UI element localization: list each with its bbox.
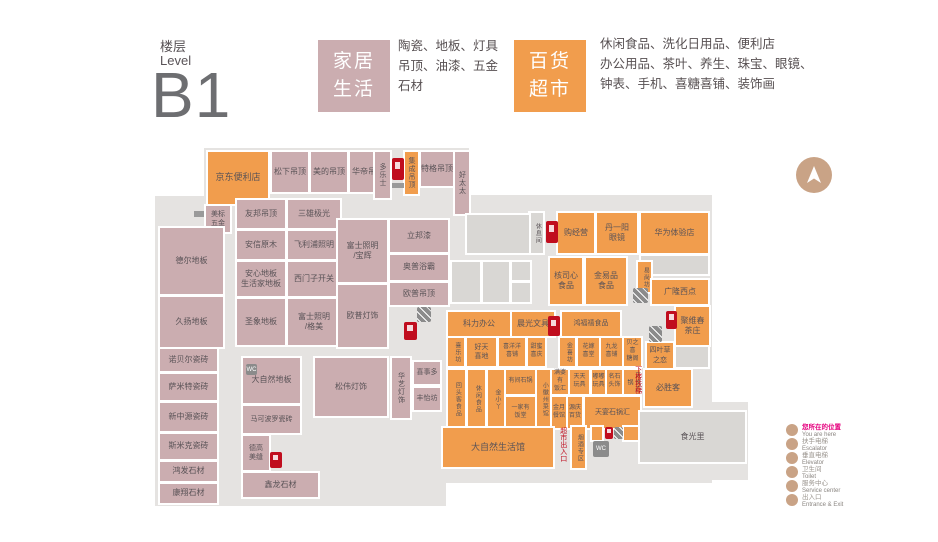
legend-label-cn: 卫生间	[802, 466, 822, 474]
map-block: 核司心 食品	[550, 258, 582, 304]
map-block: 天宴石锅汇	[585, 397, 640, 428]
north-arrow-icon	[803, 164, 825, 186]
map-block: 烟酒专区	[572, 427, 585, 468]
map-block: 斯米克瓷砖	[160, 434, 217, 459]
map-block: 多乐士	[375, 152, 390, 198]
map-block: 天天 玩具	[570, 370, 589, 394]
map-block: 贝之喜 糖阁	[624, 338, 641, 366]
map-block: 鸿福禧食品	[562, 312, 620, 336]
map-block: 萨米特瓷砖	[160, 374, 217, 400]
wc-icon: WC	[246, 364, 257, 375]
escalator-icon	[392, 183, 404, 188]
map-block: 甜蜜 喜庆	[528, 338, 545, 366]
map-block: 飞利浦照明	[288, 231, 340, 259]
legend-icon	[786, 466, 798, 478]
map-block: 松下吊顶	[272, 152, 308, 192]
map-block: 新中源瓷砖	[160, 403, 217, 431]
map-block: 好天 喜地	[467, 338, 496, 366]
legend-item: 出入口Entrance & Exit	[786, 494, 843, 510]
map-block: 安心地板 生活家地板	[237, 262, 285, 296]
wc-icon: WC	[593, 441, 609, 457]
map-red-label: 超市出入口	[559, 427, 567, 462]
fire-extinguisher-icon	[404, 322, 417, 340]
legend-icon	[786, 494, 798, 506]
legend-icon	[786, 424, 798, 436]
map-block: 友邦吊顶	[237, 200, 285, 228]
map-block: 食光里	[640, 412, 745, 462]
map-block: 购经营	[558, 213, 594, 253]
map-block: 康翔石材	[160, 484, 217, 503]
map-block: 立邦漆	[390, 220, 448, 252]
category-home-living-desc: 陶瓷、地板、灯具 吊顶、油漆、五金 石材	[398, 36, 498, 96]
map-block: 花嫁 喜堂	[578, 338, 599, 366]
legend-label-en: Entrance & Exit	[802, 502, 843, 510]
map-red-label: 下楼扶梯	[634, 366, 642, 394]
category-home-living-badge: 家居 生活	[318, 40, 390, 112]
map-block: 鸿发石材	[160, 462, 217, 481]
legend-label-cn: 服务中心	[802, 480, 840, 488]
map-block-unlabeled	[467, 215, 529, 253]
map-block: 大自然生活馆	[443, 428, 553, 467]
map-block-unlabeled	[676, 347, 708, 367]
map-block: 马可波罗瓷砖	[243, 406, 300, 433]
mall-floor-map-page: 楼层 Level B1 家居 生活 陶瓷、地板、灯具 吊顶、油漆、五金 石材 百…	[0, 0, 938, 542]
map-block: 华为体验店	[641, 213, 708, 253]
map-block: 集成吊顶	[405, 152, 418, 194]
map-block: 久扬地板	[160, 297, 223, 347]
fire-extinguisher-icon	[392, 158, 404, 180]
map-block: 华艺灯饰	[392, 358, 410, 418]
map-block: 德高 美缝	[243, 436, 269, 470]
map-block: 喜洋洋 喜铺	[499, 338, 525, 366]
map-block: 西门子开关	[288, 262, 340, 296]
map-block-unlabeled	[641, 256, 708, 274]
map-block: 源庆 百货	[568, 397, 582, 428]
fire-extinguisher-icon	[546, 221, 558, 243]
map-block: 奥普浴霸	[390, 255, 448, 280]
map-block-unlabeled	[483, 262, 509, 302]
escalator-icon	[417, 307, 431, 322]
escalator-icon	[614, 427, 623, 439]
fire-extinguisher-icon	[605, 427, 613, 439]
map-block: 满婆有 饭汇	[552, 370, 568, 394]
escalator-icon	[633, 288, 648, 303]
fire-extinguisher-icon	[270, 452, 282, 468]
map-block: 安信原木	[237, 231, 285, 259]
map-block: 金喜坊	[560, 338, 575, 366]
map-block: 聚维春 茶庄	[676, 307, 709, 345]
map-block: 丹一阳 眼镜	[597, 213, 637, 253]
map-block: 德尔地板	[160, 228, 223, 294]
map-block: 广隆西点	[652, 280, 708, 304]
map-block: 必胜客	[645, 370, 691, 406]
map-block: 回头客食品	[448, 370, 465, 428]
floor-code: B1	[151, 58, 231, 132]
map-block: 欧普灯饰	[338, 285, 387, 347]
map-block: 喜事多	[414, 362, 440, 384]
map-block: 美的吊顶	[311, 152, 347, 192]
map-block-unlabeled	[512, 283, 530, 302]
map-block: 休闲食品	[468, 370, 485, 428]
map-block: 有间石锅	[506, 370, 535, 394]
map-block: 欧普吊顶	[390, 283, 448, 305]
map-block: 富士照明 /格美	[288, 299, 340, 345]
map-block: 九龙 喜铺	[601, 338, 622, 366]
map-block: 诺贝尔瓷砖	[160, 349, 217, 371]
map-block: 金易品 食品	[586, 258, 626, 304]
map-block: 特格吊顶	[421, 152, 453, 186]
map-block: 松伟灯饰	[315, 358, 387, 416]
map-block: 好太太	[455, 152, 469, 214]
legend-icon	[786, 452, 798, 464]
legend-label-cn: 您所在的位置	[802, 424, 841, 432]
legend-icon	[786, 438, 798, 450]
map-block: 嘟嘟 玩具	[592, 370, 605, 394]
map-block: 圣象地板	[237, 299, 285, 345]
legend-icon	[786, 480, 798, 492]
map-block: 休息间	[530, 213, 543, 253]
map-block: 丰怡坊	[414, 388, 440, 410]
map-block-unlabeled	[592, 427, 602, 440]
legend-label-cn: 垂直电梯	[802, 452, 828, 460]
fire-extinguisher-icon	[548, 316, 560, 336]
map-block: 三雄极光	[288, 200, 340, 228]
escalator-icon	[649, 326, 662, 342]
map-block: 科力办公	[448, 312, 510, 336]
map-block: 京东便利店	[208, 152, 268, 204]
map-block: 一家有 饭堂	[506, 397, 535, 428]
legend-label-cn: 扶手电梯	[802, 438, 828, 446]
map-block: 富士照明 /宝辉	[338, 220, 387, 282]
escalator-icon	[194, 211, 204, 217]
map-block: 喜乐坊	[448, 338, 464, 366]
map-block: 小徽州菜馆	[537, 370, 550, 428]
fire-extinguisher-icon	[666, 311, 677, 329]
map-block: 四叶草 之恋	[647, 343, 673, 368]
map-block: 鑫龙石材	[243, 473, 318, 497]
category-department-store-badge: 百货 超市	[514, 40, 586, 112]
category-department-store-desc: 休闲食品、洗化日用品、便利店 办公用品、茶叶、养生、珠宝、眼镜、 钟表、手机、喜…	[600, 34, 813, 94]
map-block: 名石 头饰	[607, 370, 622, 394]
north-compass-icon	[796, 157, 832, 193]
legend-label-cn: 出入口	[802, 494, 843, 502]
map-block-unlabeled	[512, 262, 530, 280]
map-block-unlabeled	[452, 262, 480, 302]
map-block: 金小丫	[488, 370, 504, 428]
map-block: 金月 餐馆	[552, 397, 566, 428]
